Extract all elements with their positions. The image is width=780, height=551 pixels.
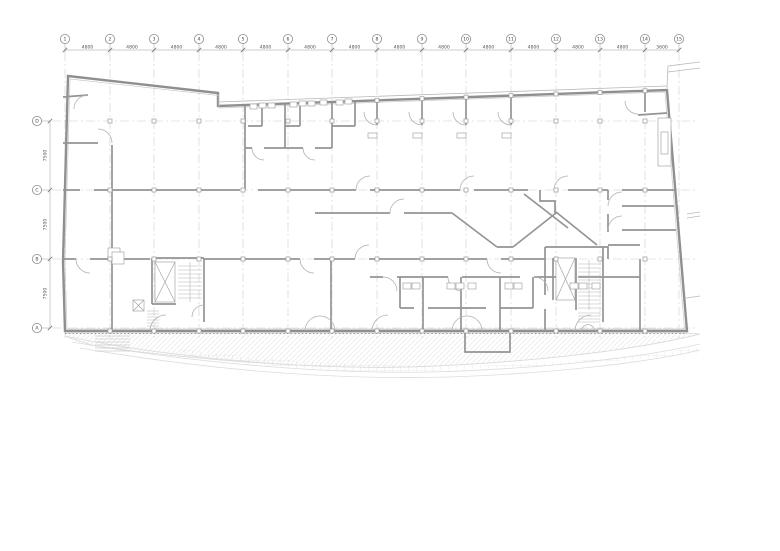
column-marker <box>598 119 602 123</box>
column-marker <box>420 97 424 101</box>
span-dimension-label: 3600 <box>656 44 668 50</box>
column-marker <box>464 188 468 192</box>
column-marker <box>509 329 513 333</box>
column-marker <box>375 257 379 261</box>
column-marker <box>241 329 245 333</box>
column-marker <box>598 329 602 333</box>
column-marker <box>554 119 558 123</box>
column-marker <box>241 257 245 261</box>
structural-grid-lines <box>52 52 696 340</box>
grid-bubble-label: 1 <box>64 37 67 43</box>
span-dimension-label: 4800 <box>349 44 361 50</box>
grid-bubble-label: 2 <box>109 37 112 43</box>
column-marker <box>152 119 156 123</box>
column-marker <box>330 257 334 261</box>
column-marker <box>598 90 602 94</box>
column-marker <box>509 188 513 192</box>
sidewalk-apron <box>65 333 700 378</box>
column-marker <box>598 188 602 192</box>
column-marker <box>330 119 334 123</box>
span-dimension-label: 4800 <box>438 44 450 50</box>
column-marker <box>464 95 468 99</box>
column-marker <box>464 119 468 123</box>
column-marker <box>598 257 602 261</box>
top-axis-dimensions: 1480024800348004480054800648007480084800… <box>60 34 683 52</box>
column-marker <box>330 188 334 192</box>
grid-bubble-label: 11 <box>508 37 514 43</box>
shaft-box-small <box>133 300 144 311</box>
column-marker <box>375 98 379 102</box>
column-marker <box>643 119 647 123</box>
column-marker <box>330 329 334 333</box>
span-dimension-label: 4800 <box>260 44 272 50</box>
span-dimension-label: 4800 <box>304 44 316 50</box>
grid-bubble-label: 14 <box>642 37 648 43</box>
grid-bubble-label: 10 <box>463 37 469 43</box>
column-marker <box>554 329 558 333</box>
grid-bubble-label: 4 <box>198 37 201 43</box>
grid-bubble-label: D <box>35 119 39 125</box>
grid-bubble-label: 9 <box>421 37 424 43</box>
stair-left-treads <box>178 262 202 302</box>
span-dimension-label: 4800 <box>528 44 540 50</box>
column-marker <box>241 188 245 192</box>
span-dimension-label: 7500 <box>43 288 49 300</box>
column-marker <box>197 188 201 192</box>
grid-bubble-label: C <box>35 188 38 194</box>
column-marker <box>286 329 290 333</box>
sidewalk-hatch-area <box>65 333 700 367</box>
grid-bubble-label: 6 <box>287 37 290 43</box>
column-marker <box>420 329 424 333</box>
grid-bubble-label: B <box>35 257 38 263</box>
fixtures <box>108 99 671 289</box>
column-marker <box>420 119 424 123</box>
grid-bubble-label: 12 <box>553 37 559 43</box>
column-marker <box>643 329 647 333</box>
column-marker <box>108 119 112 123</box>
grid-bubble-label: 8 <box>376 37 379 43</box>
stair-mini-southwest <box>147 311 159 326</box>
column-marker <box>375 119 379 123</box>
span-dimension-label: 4800 <box>617 44 629 50</box>
column-marker <box>152 188 156 192</box>
column-marker <box>286 119 290 123</box>
column-marker <box>375 188 379 192</box>
column-marker <box>108 329 112 333</box>
elevator-shaft-right <box>556 258 575 300</box>
span-dimension-label: 4800 <box>215 44 227 50</box>
span-dimension-label: 4800 <box>126 44 138 50</box>
column-marker <box>241 119 245 123</box>
span-dimension-label: 7500 <box>43 150 49 162</box>
column-marker <box>509 257 513 261</box>
column-marker <box>464 329 468 333</box>
column-marker <box>420 257 424 261</box>
column-marker <box>197 119 201 123</box>
column-marker <box>286 257 290 261</box>
grid-bubble-label: 5 <box>242 37 245 43</box>
grid-bubble-label: 3 <box>153 37 156 43</box>
column-marker <box>643 89 647 93</box>
column-marker <box>108 188 112 192</box>
building <box>63 62 700 352</box>
column-marker <box>197 257 201 261</box>
grid-bubble-label: 7 <box>331 37 334 43</box>
floor-plan-canvas: 1480024800348004480054800648007480084800… <box>0 0 780 551</box>
column-marker <box>152 329 156 333</box>
column-marker <box>554 188 558 192</box>
span-dimension-label: 4800 <box>394 44 406 50</box>
column-marker <box>152 257 156 261</box>
column-marker <box>375 329 379 333</box>
span-dimension-label: 4800 <box>572 44 584 50</box>
column-marker <box>197 329 201 333</box>
column-marker <box>420 188 424 192</box>
column-marker <box>643 257 647 261</box>
span-dimension-label: 4800 <box>483 44 495 50</box>
stair-mini-right-core <box>578 313 600 322</box>
column-marker <box>509 119 513 123</box>
grid-bubble-label: 13 <box>597 37 603 43</box>
column-marker <box>643 188 647 192</box>
column-marker <box>286 188 290 192</box>
column-marker <box>509 94 513 98</box>
column-marker <box>464 257 468 261</box>
grid-bubble-label: 15 <box>676 37 682 43</box>
column-marker <box>554 92 558 96</box>
column-marker <box>108 257 112 261</box>
left-axis-dimensions: D7500C7500B7500A <box>32 116 52 332</box>
column-marker <box>554 257 558 261</box>
elevator-shaft-left <box>155 262 175 302</box>
span-dimension-label: 7500 <box>43 219 49 231</box>
span-dimension-label: 4800 <box>82 44 94 50</box>
span-dimension-label: 4800 <box>171 44 183 50</box>
